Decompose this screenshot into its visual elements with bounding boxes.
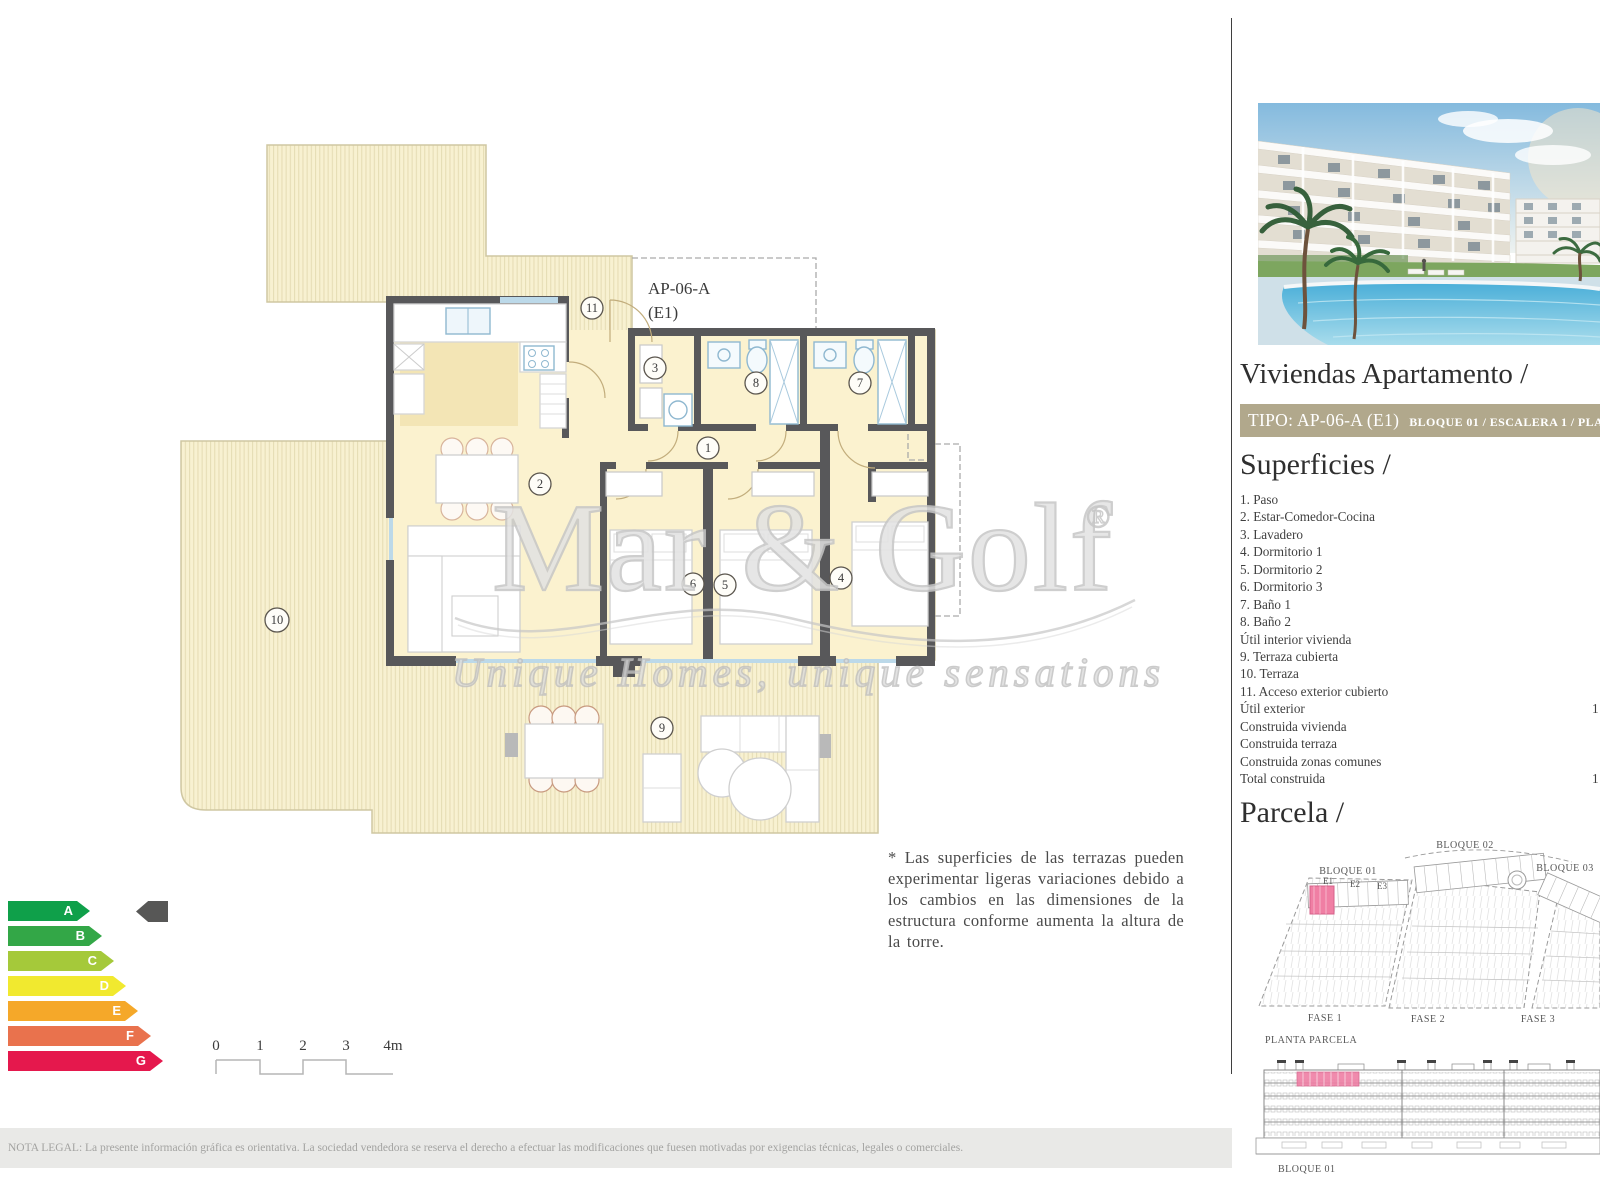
room-number: 9: [659, 721, 665, 735]
superficies-label: Construida vivienda: [1240, 719, 1347, 734]
energy-rating-chart: A B C D E F G: [8, 901, 163, 1076]
scale-bar: 0 1 2 3 4m: [203, 1036, 413, 1081]
superficies-label: Construida terraza: [1240, 736, 1337, 751]
e3-label: E3: [1377, 881, 1387, 891]
superficies-row: 3. Lavadero: [1240, 527, 1600, 544]
superficies-row: 10. Terraza: [1240, 666, 1600, 683]
superficies-label: Construida zonas comunes: [1240, 754, 1381, 769]
tipo-bar: TIPO: AP-06-A (E1)BLOQUE 01 / ESCALERA 1…: [1240, 404, 1600, 437]
energy-row-d: D: [8, 976, 163, 996]
scale-tick: 1: [256, 1038, 264, 1054]
room-number: 11: [586, 301, 598, 315]
superficies-label: Útil interior vivienda: [1240, 632, 1351, 647]
room-number: 7: [857, 376, 863, 390]
superficies-label: 2. Estar-Comedor-Cocina: [1240, 509, 1375, 524]
room-number: 10: [271, 613, 284, 627]
sidebar: Viviendas Apartamento / TIPO: AP-06-A (E…: [1232, 0, 1600, 1200]
superficies-label: 7. Baño 1: [1240, 597, 1291, 612]
superficies-row: 11. Acceso exterior cubierto: [1240, 684, 1600, 701]
superficies-row: 9. Terraza cubierta: [1240, 649, 1600, 666]
fase1-label: FASE 1: [1308, 1013, 1342, 1024]
energy-bar-b: B: [8, 926, 102, 946]
watermark-tagline: Unique Homes, unique sensations: [452, 648, 1165, 696]
superficies-label: 10. Terraza: [1240, 666, 1299, 681]
parcela-heading: Parcela /: [1240, 796, 1344, 830]
watermark-brand: Mar & Golf: [492, 486, 1114, 612]
planta-parcela-label: PLANTA PARCELA: [1265, 1035, 1358, 1046]
building-photo-art: [1258, 103, 1600, 345]
superficies-row: 5. Dormitorio 2: [1240, 562, 1600, 579]
building-elevation: BLOQUE 01: [1252, 1050, 1600, 1180]
unit-label: AP-06-A: [648, 279, 711, 298]
elevation-highlight: [1297, 1072, 1359, 1086]
registered-icon: ®: [1086, 498, 1110, 535]
building-photo: [1258, 103, 1600, 345]
energy-bar-g: G: [8, 1051, 163, 1071]
superficies-label: 1. Paso: [1240, 492, 1278, 507]
energy-bar-e: E: [8, 1001, 138, 1021]
elevation-chimneys: [1277, 1060, 1575, 1070]
page-title: Viviendas Apartamento /: [1240, 358, 1528, 391]
energy-row-c: C: [8, 951, 163, 971]
elevation-bloque-label: BLOQUE 01: [1278, 1164, 1336, 1175]
superficies-label: 5. Dormitorio 2: [1240, 562, 1322, 577]
e1-label: E1: [1323, 876, 1333, 886]
fase1-parcel: [1259, 878, 1412, 1006]
energy-bar-f: F: [8, 1026, 151, 1046]
e1-highlight: [1310, 886, 1334, 914]
superficies-row: 8. Baño 2: [1240, 614, 1600, 631]
superficies-row: Útil interior vivienda: [1240, 632, 1600, 649]
bloque03-label: BLOQUE 03: [1536, 863, 1594, 874]
superficies-list: 1. Paso 2. Estar-Comedor-Cocina 3. Lavad…: [1240, 492, 1600, 788]
superficies-row: Construida zonas comunes: [1240, 754, 1600, 771]
superficies-label: Total construida: [1240, 771, 1325, 786]
energy-row-e: E: [8, 1001, 163, 1021]
brochure-page: AP-06-A (E1) 1 2 3 4 5 6 7 8 9 10 11 Mar…: [0, 0, 1600, 1200]
elevation-podium: [1256, 1138, 1600, 1154]
scale-tick: 3: [342, 1038, 350, 1054]
site-plan: BLOQUE 01 BLOQUE 02 BLOQUE 03 E1 E2 E3 F…: [1240, 836, 1600, 1048]
superficies-label: 4. Dormitorio 1: [1240, 544, 1322, 559]
superficies-label: 8. Baño 2: [1240, 614, 1291, 629]
fase3-label: FASE 3: [1521, 1014, 1555, 1025]
superficies-value: 1: [1592, 701, 1599, 717]
superficies-row: Útil exterior1: [1240, 701, 1600, 718]
energy-row-f: F: [8, 1026, 163, 1046]
superficies-value: 1: [1592, 771, 1599, 787]
superficies-row: 4. Dormitorio 1: [1240, 544, 1600, 561]
energy-bar-a: A: [8, 901, 90, 921]
room-number: 8: [753, 376, 759, 390]
fase3-parcel: [1532, 873, 1600, 1008]
superficies-label: Útil exterior: [1240, 701, 1305, 716]
scale-tick: 4m: [383, 1038, 403, 1054]
superficies-row: 7. Baño 1: [1240, 597, 1600, 614]
energy-row-b: B: [8, 926, 163, 946]
superficies-row: 1. Paso: [1240, 492, 1600, 509]
superficies-heading: Superficies /: [1240, 448, 1391, 482]
scale-line: [216, 1060, 393, 1074]
superficies-label: 9. Terraza cubierta: [1240, 649, 1338, 664]
fase2-label: FASE 2: [1411, 1014, 1445, 1025]
terrace-note: * Las superficies de las terrazas pueden…: [888, 848, 1184, 953]
bloque02-label: BLOQUE 02: [1436, 840, 1494, 851]
room-number: 1: [705, 441, 711, 455]
superficies-row: Total construida1: [1240, 771, 1600, 788]
superficies-row: 2. Estar-Comedor-Cocina: [1240, 509, 1600, 526]
tipo-location: BLOQUE 01 / ESCALERA 1 / PLANTA Á: [1409, 415, 1600, 429]
energy-bar-c: C: [8, 951, 114, 971]
superficies-label: 3. Lavadero: [1240, 527, 1303, 542]
room-number: 3: [652, 361, 658, 375]
scale-tick: 2: [299, 1038, 307, 1054]
superficies-label: 11. Acceso exterior cubierto: [1240, 684, 1388, 699]
superficies-row: Construida terraza: [1240, 736, 1600, 753]
e2-label: E2: [1350, 879, 1360, 889]
superficies-label: 6. Dormitorio 3: [1240, 579, 1322, 594]
energy-row-g: G: [8, 1051, 163, 1071]
superficies-row: 6. Dormitorio 3: [1240, 579, 1600, 596]
tipo-label: TIPO: AP-06-A (E1): [1248, 410, 1399, 430]
energy-bar-d: D: [8, 976, 126, 996]
superficies-row: Construida vivienda: [1240, 719, 1600, 736]
scale-tick: 0: [212, 1038, 220, 1054]
legal-note-bar: NOTA LEGAL: La presente información gráf…: [0, 1128, 1232, 1168]
unit-sublabel: (E1): [648, 303, 678, 322]
